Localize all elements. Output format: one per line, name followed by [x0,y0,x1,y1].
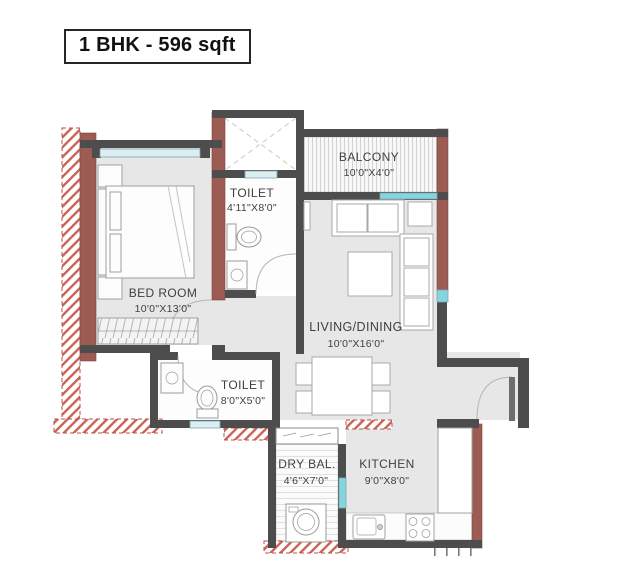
bedroom-label: BED ROOM [129,286,198,300]
living-dims: 10'0"X16'0" [328,338,385,350]
sofa-cushion [368,204,398,232]
toilet1-dims: 4'11"X8'0" [227,202,277,214]
sofa-cushion [337,204,367,232]
wc-bowl-inner-1 [242,231,257,243]
wc-tank-2 [197,409,218,418]
dining-chair-symbol [370,363,390,385]
wall-toilet2-right [272,352,280,428]
sofa-cushion [404,268,429,296]
floor-plan-page: 1 BHK - 596 sqft [0,0,620,567]
wall-toilet2-top-a [158,352,178,360]
wall-toilet2-left [150,352,158,428]
stove-icon [406,514,434,541]
brick-wall-living-right [437,199,448,291]
washing-machine-panel [289,507,298,512]
burner [422,518,430,526]
dining-chair-symbol [370,391,390,413]
burner [409,518,417,526]
tick [470,548,472,556]
wardrobe-symbol [98,318,198,344]
plinth-kitchen-top [346,420,392,429]
brick-wall-kitchen-right [472,424,482,548]
wall-balcony-top [296,129,448,137]
wall-bedroom-top [80,140,222,148]
tick [458,548,460,556]
dining-table-symbol [312,357,372,415]
floor-plan-drawing: BED ROOM 10'0"X13'0" TOILET 4'11"X8'0" B… [0,0,620,567]
wall-foyer-bottom [437,419,479,428]
sofa-cushion [404,238,429,266]
wall-living-right-lower [437,296,447,362]
bed-pillow-2 [110,234,121,272]
brick-wall-bedroom-left [80,133,96,361]
window-cap-right [200,148,210,158]
washbasin-bowl-1 [231,269,243,281]
bedroom-door-opening [212,300,225,346]
kitchen-counter-symbol [438,428,472,513]
bedroom-dims: 10'0"X13'0" [135,303,192,315]
wall-toilet1-right [296,110,304,354]
bedside-table-top [98,165,122,187]
entry-door-leaf [509,377,515,421]
sink-tap [378,525,383,530]
bedroom-window [100,149,200,157]
kitchen-drybal-window [339,478,346,508]
wc-bowl-inner-2 [201,390,213,406]
balcony-label: BALCONY [339,150,399,164]
wc-tank-1 [227,224,236,250]
wall-bedroom-bottom [80,345,170,353]
toilet1-window [245,171,277,178]
wall-toilet1-bottom [225,290,256,298]
washbasin-bowl-2 [166,372,178,384]
toilet2-dims: 8'0"X5'0" [221,395,266,407]
washing-machine-icon [286,504,326,542]
wall-shaft-top [212,110,304,118]
burner [409,530,417,538]
passage-floor [225,296,304,354]
living-right-window [437,290,448,302]
toilet1-label: TOILET [230,186,274,200]
plinth-void-bottom [54,419,162,433]
washing-machine-drum-inner [298,514,315,531]
wall-foyer-step [437,358,529,367]
kitchen-dims: 9'0"X8'0" [365,475,410,487]
sofa-cushion [404,298,429,326]
bedside-table-bottom [98,277,122,299]
burner [422,530,430,538]
wall-outer-right [518,358,529,428]
coffee-table-symbol [348,252,392,296]
tick [434,548,436,556]
kitchen-label: KITCHEN [359,457,414,471]
drybal-label: DRY BAL. [278,457,335,471]
toilet2-label: TOILET [221,378,265,392]
balcony-dims: 10'0"X4'0" [344,167,395,179]
living-balcony-slider-window [380,193,437,199]
plinth-drybal-bottom [264,541,348,553]
bed-headboard [98,189,106,275]
balcony-floor [304,137,437,192]
railing-ticks [434,548,472,556]
tick [446,548,448,556]
louver-panel [276,428,338,444]
brick-wall-balcony-right [437,129,448,199]
side-table-symbol [408,202,432,226]
drybal-dims: 4'6"X7'0" [284,475,329,487]
wall-toilet2-top-b [217,352,280,360]
bed-pillow-1 [110,192,121,230]
plinth-left [62,128,80,433]
toilet2-window [190,421,220,428]
sink-basin [357,518,376,535]
tv-unit-symbol [304,202,310,230]
stove-body [406,514,434,541]
wall-drybal-left [268,428,276,548]
living-label: LIVING/DINING [309,320,402,334]
